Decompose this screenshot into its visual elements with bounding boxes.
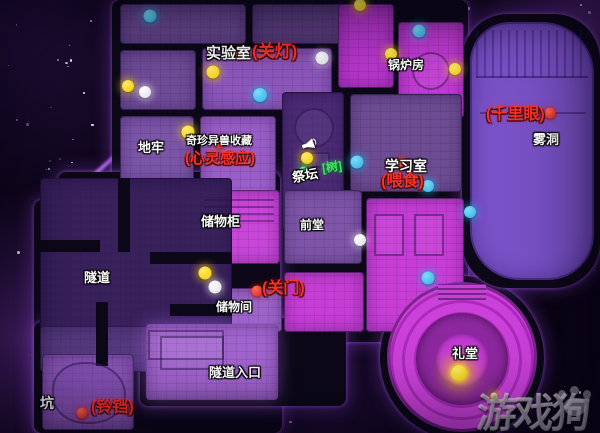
tunnel-wall xyxy=(40,240,100,252)
map-dot-white xyxy=(316,52,329,65)
map-dot-white xyxy=(139,86,151,98)
map-label-storage: 储物间 xyxy=(216,301,252,313)
tunnel-wall xyxy=(150,252,232,264)
cave-trees-sketch xyxy=(476,30,588,78)
map-dot-cyan xyxy=(144,10,157,23)
map-dot-yellow xyxy=(449,63,461,75)
room-lab-west xyxy=(120,50,196,110)
map-label-study: 学习室 xyxy=(385,159,427,173)
map-dot-red xyxy=(545,108,556,119)
map-dot-cyan xyxy=(422,272,435,285)
map-label-entrance: 隧道入口 xyxy=(209,366,261,379)
map-label-cave: 雾洞 xyxy=(533,133,559,146)
map-label-dungeon: 地牢 xyxy=(138,141,164,154)
tunnel-wall xyxy=(96,302,108,366)
game-map-scene: 实验室(关灯)锅炉房(千里眼)雾洞地牢奇珍异兽收藏(心灵感应)祭坛[树]学习室(… xyxy=(0,0,600,433)
map-dot-red xyxy=(77,408,88,419)
map-dot-cyan xyxy=(253,88,267,102)
map-label-front-hall: 前堂 xyxy=(300,219,324,231)
map-dot-cyan xyxy=(464,206,476,218)
map-label-locker: 储物柜 xyxy=(201,215,240,228)
auditorium-stairs xyxy=(438,284,486,300)
map-label-door-skill: (关门) xyxy=(262,281,305,297)
room-top-magenta xyxy=(338,4,394,88)
map-dot-yellow xyxy=(301,152,313,164)
map-label-altar-tag: [树] xyxy=(321,160,342,175)
map-label-auditorium: 礼堂 xyxy=(452,347,478,360)
map-dot-red xyxy=(252,286,263,297)
map-dot-cyan xyxy=(413,25,426,38)
map-dot-white xyxy=(354,234,366,246)
bed-sketch xyxy=(414,214,444,256)
map-dot-white xyxy=(209,281,222,294)
map-label-lab-skill: (关灯) xyxy=(252,43,297,60)
map-label-boiler: 锅炉房 xyxy=(388,59,424,71)
map-label-bell-skill: (铃铛) xyxy=(91,400,134,416)
map-label-study-skill: (喂食) xyxy=(381,174,424,190)
map-label-telepathy: (心灵感应) xyxy=(185,151,255,166)
map-label-clairvoyance: (千里眼) xyxy=(486,107,545,123)
map-dot-yellow xyxy=(451,365,467,381)
map-label-collection: 奇珍异兽收藏 xyxy=(186,136,252,147)
map-label-tunnel: 隧道 xyxy=(84,271,110,284)
bed-sketch xyxy=(374,214,404,256)
map-label-lab: 实验室 xyxy=(206,46,251,61)
map-dot-yellow xyxy=(122,80,134,92)
dog-paw-icon xyxy=(556,386,594,420)
map-label-pit: 坑 xyxy=(40,396,54,410)
tunnel-wall xyxy=(118,178,130,252)
map-dot-yellow xyxy=(207,66,220,79)
room-hall-top-left xyxy=(120,4,246,44)
map-dot-yellow xyxy=(199,267,212,280)
room-hall-top-mid xyxy=(252,4,346,44)
map-dot-cyan xyxy=(351,156,364,169)
speaker-icon xyxy=(302,139,317,151)
